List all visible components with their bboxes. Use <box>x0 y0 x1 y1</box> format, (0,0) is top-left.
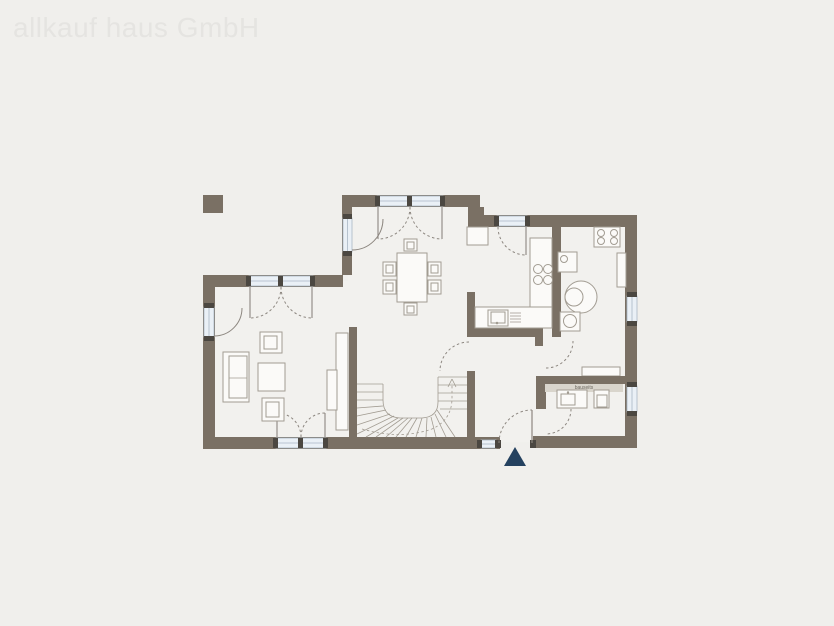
stage: allkauf haus GmbH bauseits <box>0 0 834 626</box>
wall-stair-east <box>467 371 475 449</box>
window-post <box>494 216 499 226</box>
entrance-triangle <box>504 447 526 466</box>
tv-screen <box>327 370 337 410</box>
dining-chair-inner <box>431 265 438 273</box>
kitchen-counter-south <box>475 307 552 328</box>
wall-bottom-right <box>533 436 637 448</box>
wc-toilet-bowl <box>597 395 607 407</box>
dining-chair-inner <box>386 283 393 291</box>
window-post <box>323 438 328 448</box>
stove-burner <box>598 238 605 245</box>
washer-drum <box>564 315 577 328</box>
wall-left <box>203 275 215 449</box>
dryer <box>558 252 577 272</box>
dining-chair-inner <box>431 283 438 291</box>
window-post <box>343 214 352 219</box>
wall-kitchen-west <box>467 292 475 328</box>
window-post <box>525 216 530 226</box>
wall-kitchen-stub <box>535 337 543 346</box>
window-post <box>375 196 380 206</box>
window-post <box>204 303 214 308</box>
dining-chair-inner <box>407 306 414 313</box>
stove-burner <box>598 230 605 237</box>
window-post <box>627 292 637 297</box>
coffee-table <box>258 363 285 391</box>
window-post <box>627 382 637 387</box>
fridge <box>467 227 488 245</box>
kitchen-sink-basin <box>491 312 505 323</box>
window-post <box>627 411 637 416</box>
wc-band-label: bauseits <box>545 383 623 393</box>
wall-kitchen-south <box>467 328 543 337</box>
door-jamb-post <box>495 440 501 448</box>
sofa-seat <box>229 356 247 398</box>
hob-burner <box>544 265 553 274</box>
hob-burner <box>544 276 553 285</box>
utility-shelf <box>582 367 620 376</box>
wc-vanity-basin <box>561 394 575 405</box>
wall-step <box>468 207 484 227</box>
dining-table <box>397 253 427 302</box>
tv-board <box>336 333 348 430</box>
hob-burner <box>534 265 543 274</box>
armchair-inner <box>264 336 277 349</box>
armchair-inner <box>266 402 279 417</box>
radiator <box>617 253 626 287</box>
window-post <box>440 196 445 206</box>
window-post <box>627 321 637 326</box>
door-jamb-post <box>530 440 536 448</box>
window-post <box>310 276 315 286</box>
stove-burner <box>611 230 618 237</box>
legend-square <box>203 195 223 213</box>
door-jamb-post <box>477 440 482 448</box>
window-post <box>407 196 412 206</box>
window-post <box>298 438 303 448</box>
dining-chair-inner <box>407 242 414 249</box>
sink-faucet <box>496 322 499 325</box>
dining-chair-inner <box>386 265 393 273</box>
window-post <box>343 251 352 256</box>
wall-stair-west <box>349 327 357 449</box>
window-post <box>273 438 278 448</box>
hob-burner <box>534 276 543 285</box>
dryer-dial <box>561 256 568 263</box>
floor-plan-svg <box>0 0 834 626</box>
window-post <box>204 336 214 341</box>
window-post <box>278 276 283 286</box>
boiler-inner <box>565 288 583 306</box>
stove-burner <box>611 238 618 245</box>
window-post <box>246 276 251 286</box>
